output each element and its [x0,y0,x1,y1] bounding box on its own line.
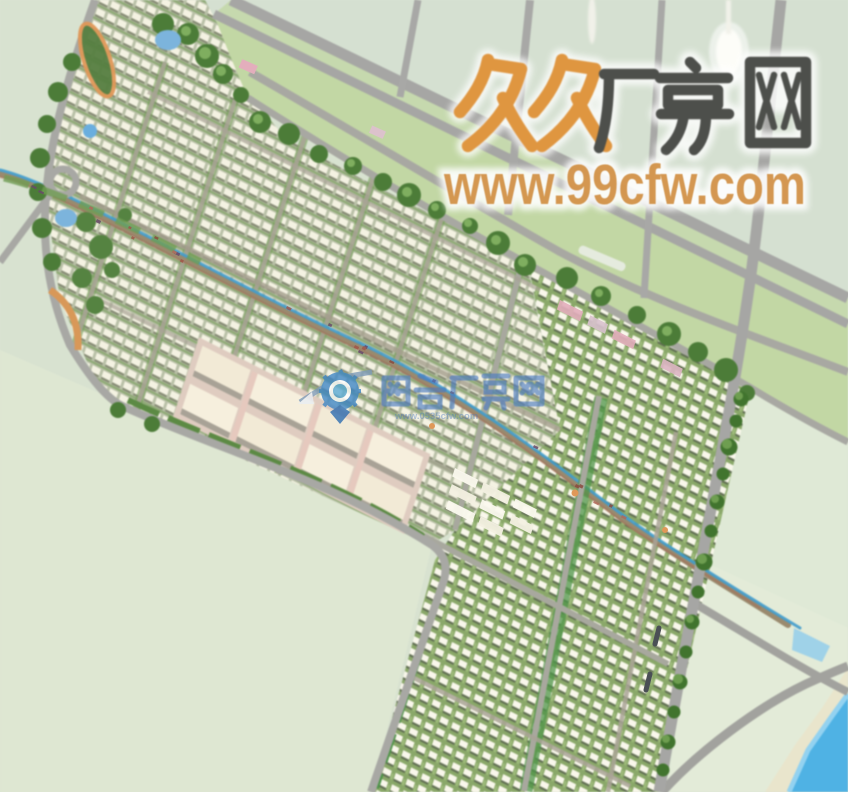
svg-text:www.0535cfw.com: www.0535cfw.com [394,411,478,422]
svg-text:www.99cfw.com: www.99cfw.com [443,153,806,217]
